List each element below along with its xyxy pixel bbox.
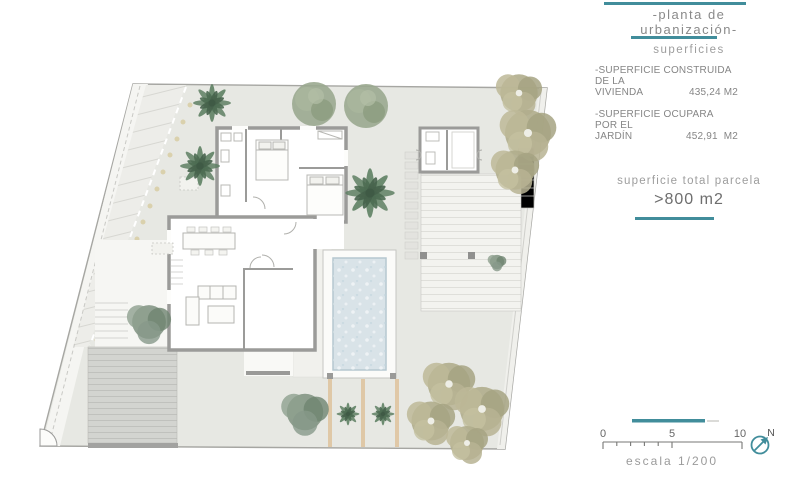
panel-title-line1: -planta de — [590, 7, 788, 22]
palm-tree — [337, 403, 360, 426]
scale-bar: 0 5 10 N escala 1/200 — [590, 398, 788, 477]
scale-numbers: 0 5 10 — [600, 428, 746, 440]
surface-item-vivienda: -SUPERFICIE CONSTRUIDA DE LA VIVIENDA 43… — [595, 65, 738, 98]
panel-title-line2: urbanización- — [590, 22, 788, 37]
divider — [604, 2, 746, 5]
scale-ruler — [603, 442, 742, 449]
scale-tick-5: 5 — [669, 428, 675, 440]
divider — [635, 217, 714, 220]
scale-reference-bar — [632, 419, 705, 423]
north-label: N — [767, 427, 775, 439]
north-arrow-icon: N — [752, 427, 775, 454]
panel-subtitle: superficies — [590, 44, 788, 56]
pergola-post — [468, 252, 475, 259]
scale-caption: escala 1/200 — [626, 454, 718, 468]
total-parcel-label: superficie total parcela — [590, 175, 788, 187]
round-tree — [344, 84, 388, 128]
surface-label-line1: -SUPERFICIE OCUPARA POR EL — [595, 109, 738, 131]
site-plan — [0, 0, 590, 477]
outbuilding — [416, 128, 482, 172]
palm-tree — [372, 403, 395, 426]
scale-bar-area: 0 5 10 N escala 1/200 — [590, 398, 788, 477]
surface-list: -SUPERFICIE CONSTRUIDA DE LA VIVIENDA 43… — [595, 65, 738, 153]
surface-label-line2: JARDÍN — [595, 131, 632, 142]
scale-tick-0: 0 — [600, 428, 606, 440]
pergola-post — [420, 252, 427, 259]
round-tree — [292, 82, 336, 126]
pool — [323, 250, 396, 379]
scale-tick-10: 10 — [734, 428, 746, 440]
legend-panel: -planta de urbanización- superficies -SU… — [590, 0, 788, 396]
architectural-plan-sheet: { "colors": { "accent_teal": "#418d9b", … — [0, 0, 788, 477]
olive-tree — [446, 426, 488, 464]
palm-tree — [345, 168, 394, 217]
surface-value: 435,24 M2 — [689, 87, 738, 98]
surface-label-line1: -SUPERFICIE CONSTRUIDA DE LA — [595, 65, 738, 87]
palm-tree — [193, 84, 231, 122]
palm-tree — [180, 146, 220, 186]
divider — [631, 36, 717, 39]
total-parcel-value: >800 m2 — [590, 191, 788, 209]
surface-item-jardin: -SUPERFICIE OCUPARA POR EL JARDÍN 452,91… — [595, 109, 738, 142]
surface-value: 452,91 M2 — [686, 131, 738, 142]
garage-ramp — [88, 347, 178, 448]
surface-label-line2: VIVIENDA — [595, 87, 643, 98]
